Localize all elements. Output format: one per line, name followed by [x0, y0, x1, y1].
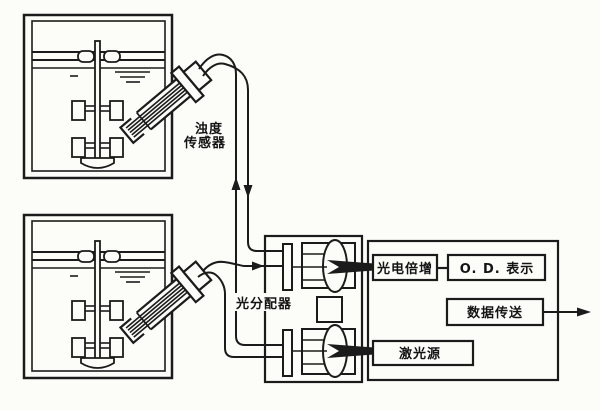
coupler-square	[317, 297, 342, 322]
flow-arrow-up-icon	[232, 177, 241, 190]
lower-slit	[283, 330, 292, 376]
flow-arrow-down-icon	[244, 185, 253, 198]
fiber-upper-return	[203, 64, 283, 251]
upper-slit	[283, 244, 292, 290]
turbidity-sensor-label-line1: 浊度	[195, 121, 223, 137]
flow-arrow-right-icon	[577, 308, 591, 317]
page: 浊度 传感器 光分配器 光电倍增 O. D. 表示 数据传送 激光源	[0, 0, 600, 410]
data-transfer-label: 数据传送	[467, 305, 523, 321]
fermenter-tank-1	[24, 15, 172, 178]
light-distributor-label: 光分配器	[235, 296, 292, 312]
flow-arrow-right-icon	[252, 262, 264, 271]
photomultiplier-label: 光电倍增	[376, 261, 433, 277]
od-display-label: O. D. 表示	[460, 261, 535, 277]
fermenter-tank-2	[24, 215, 172, 378]
turbidity-sensor-label-line2: 传感器	[183, 135, 226, 151]
laser-source-label: 激光源	[399, 346, 441, 362]
diagram-svg: 浊度 传感器 光分配器 光电倍增 O. D. 表示 数据传送 激光源	[0, 0, 600, 410]
